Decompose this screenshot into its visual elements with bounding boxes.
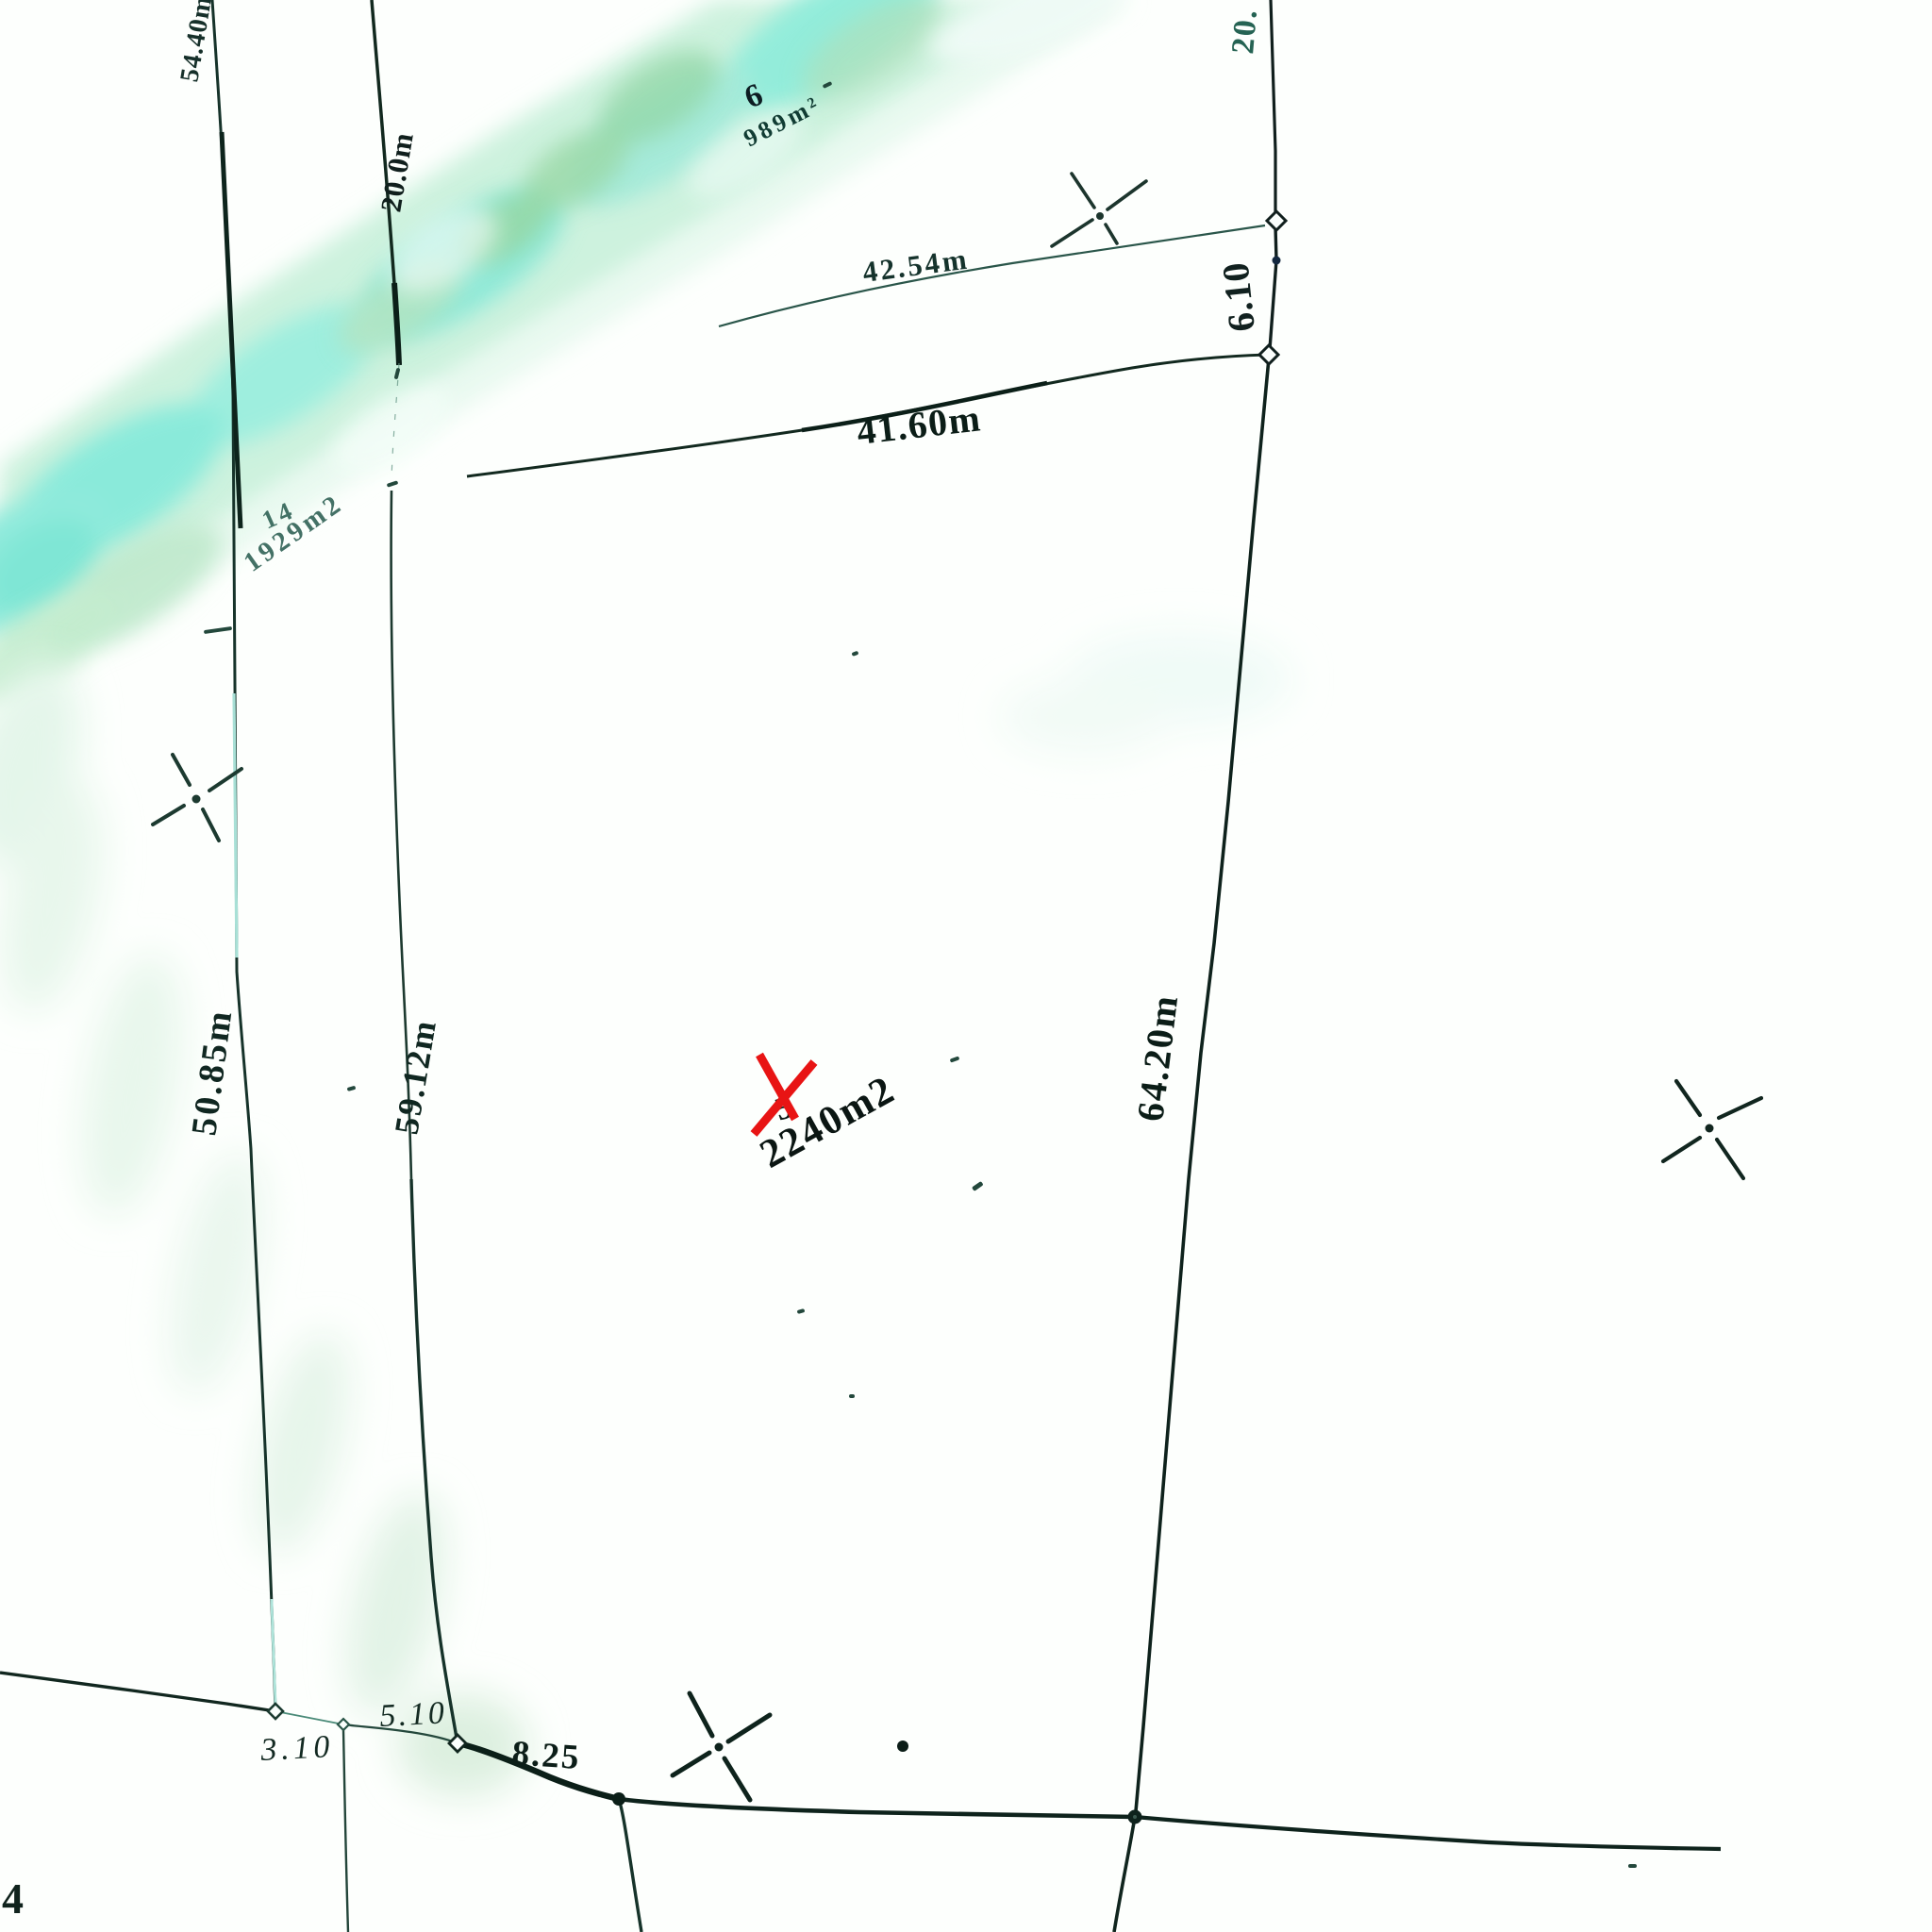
svg-text:4: 4 <box>2 1874 24 1923</box>
svg-text:20.: 20. <box>1225 7 1264 56</box>
svg-text:6.10: 6.10 <box>1213 259 1262 333</box>
svg-text:8.25: 8.25 <box>510 1734 581 1777</box>
svg-text:5.10: 5.10 <box>378 1695 447 1734</box>
svg-text:3.10: 3.10 <box>258 1729 334 1768</box>
